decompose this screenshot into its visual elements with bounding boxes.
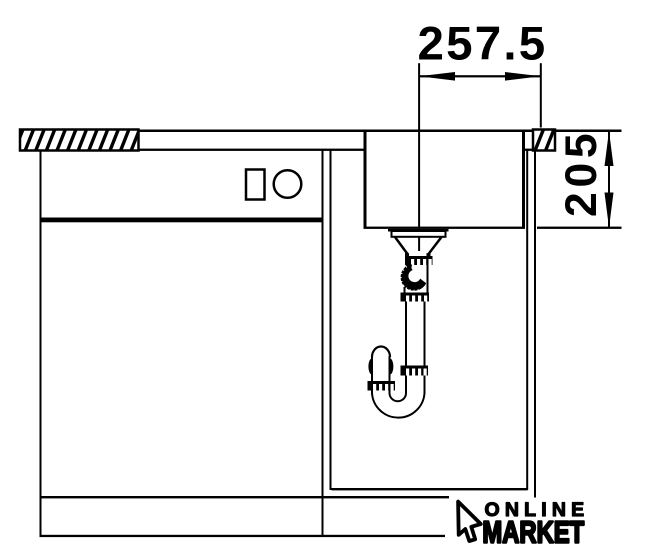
svg-text:257.5: 257.5 [418, 18, 548, 71]
svg-text:MARKET: MARKET [482, 515, 584, 550]
svg-text:205: 205 [557, 129, 606, 217]
